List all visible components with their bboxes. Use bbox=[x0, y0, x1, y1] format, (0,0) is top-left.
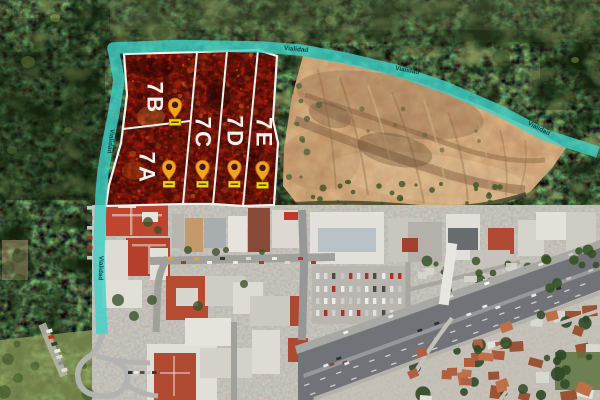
svg-text:7A: 7A bbox=[135, 151, 160, 184]
svg-text:Vialidad: Vialidad bbox=[97, 256, 105, 281]
svg-text:7C: 7C bbox=[191, 116, 216, 149]
svg-text:7E: 7E bbox=[252, 117, 277, 149]
svg-text:7B: 7B bbox=[143, 81, 168, 114]
svg-text:7D: 7D bbox=[223, 115, 248, 148]
